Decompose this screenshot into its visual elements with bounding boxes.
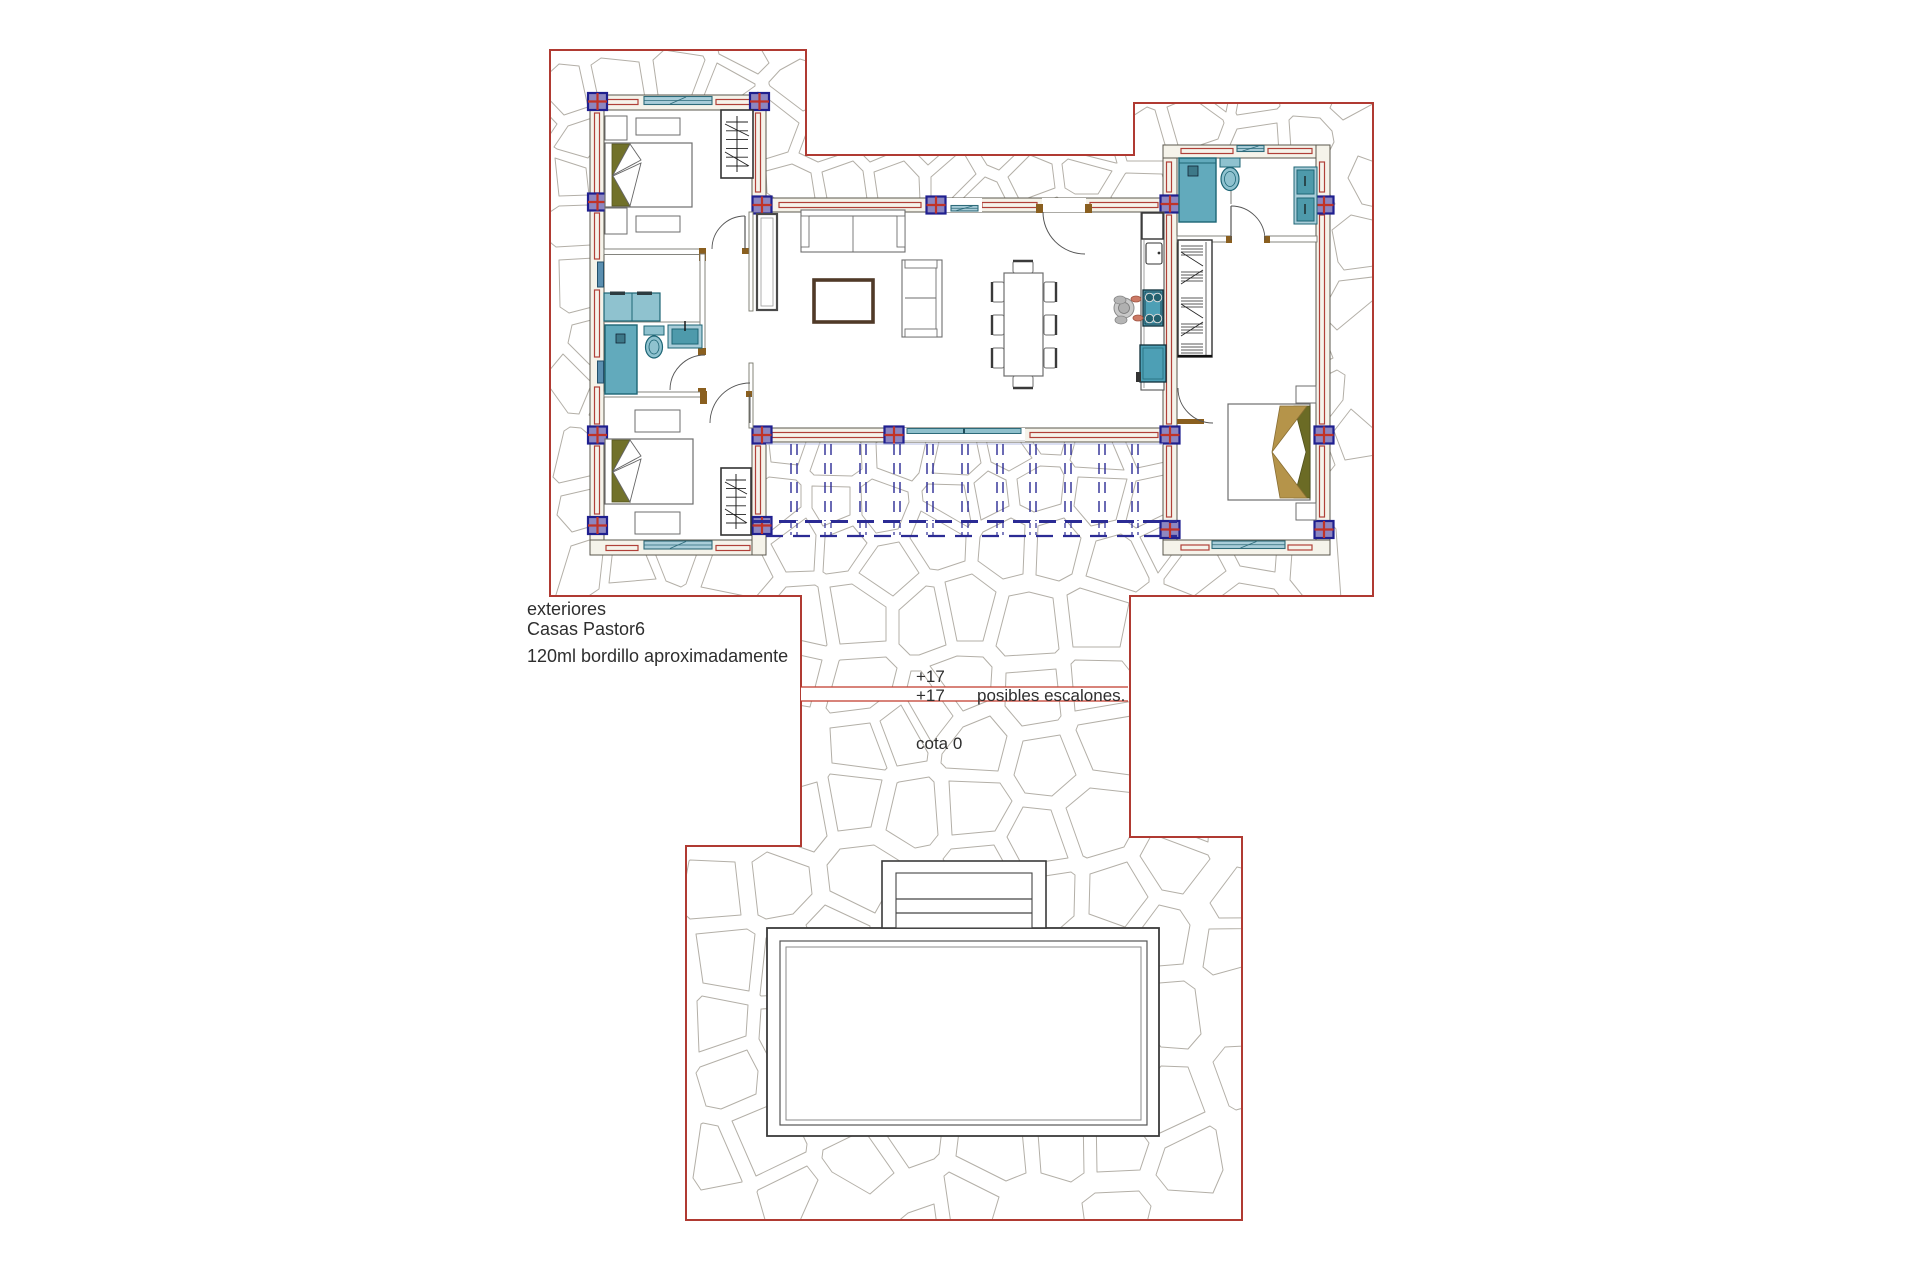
svg-text:Casas Pastor6: Casas Pastor6 <box>527 619 645 639</box>
svg-text:+17: +17 <box>916 686 945 705</box>
svg-text:120ml bordillo aproximadamente: 120ml bordillo aproximadamente <box>527 646 788 666</box>
svg-text:cota 0: cota 0 <box>916 734 962 753</box>
svg-text:+17: +17 <box>916 667 945 686</box>
svg-text:exteriores: exteriores <box>527 599 606 619</box>
svg-text:posibles escalones.: posibles escalones. <box>977 686 1125 705</box>
